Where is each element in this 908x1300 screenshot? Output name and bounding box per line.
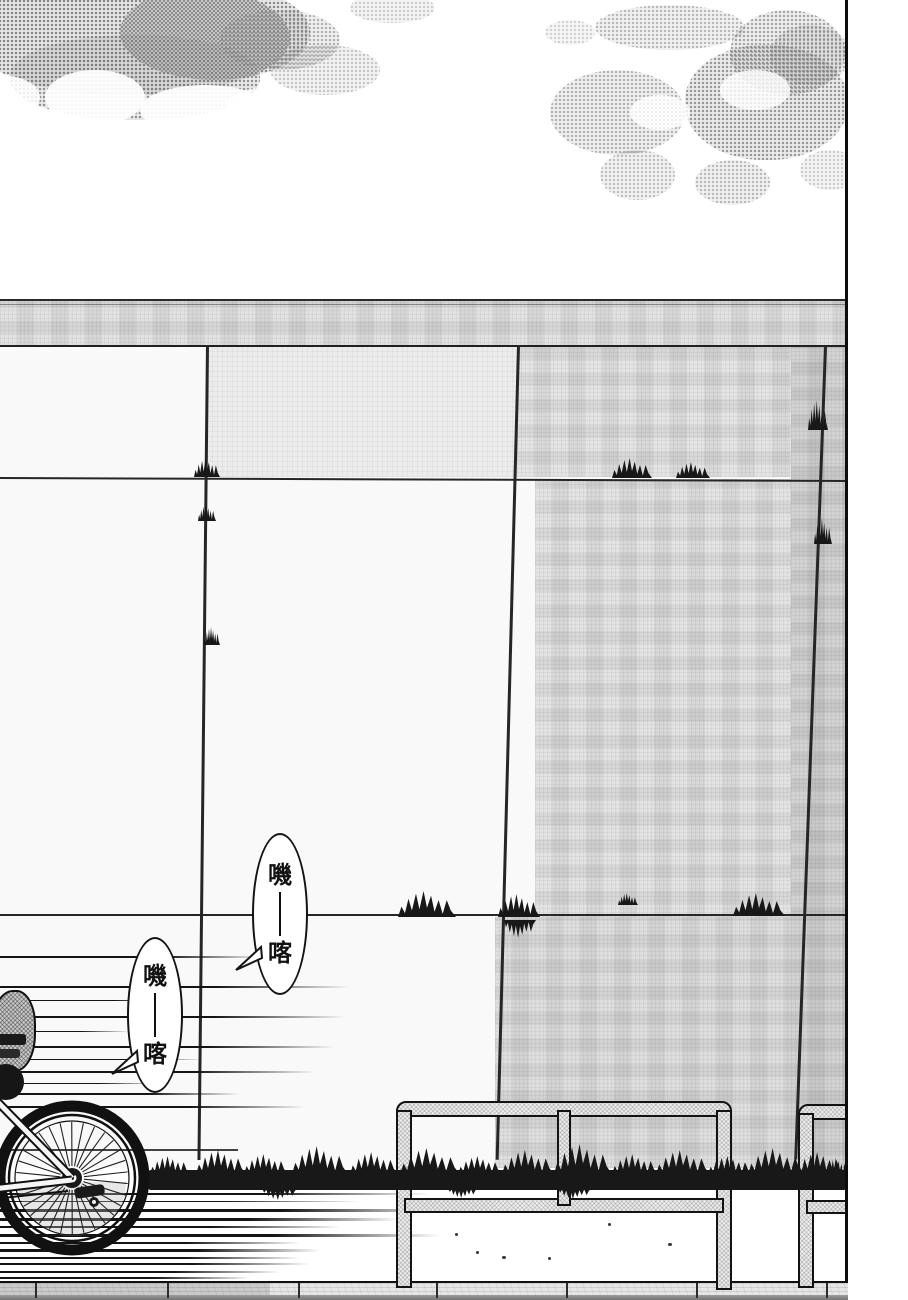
cloud-blob (600, 150, 675, 200)
cloud-blob (595, 5, 745, 50)
wall-beam-top-line2 (0, 304, 848, 305)
bike-rack-bar (0, 1049, 20, 1058)
cloud-top-right (540, 0, 848, 240)
ground-speck (668, 1243, 672, 1246)
wall-beam-bottom-line (0, 345, 848, 347)
cloud-blob (350, 0, 435, 23)
curb-joint (826, 1283, 828, 1298)
curb-bottom-dark (0, 1295, 848, 1300)
sfx-char-top: 嘰 (268, 863, 292, 887)
panel-border-right (845, 0, 848, 1283)
ground-speck (455, 1233, 458, 1236)
cloud-blob (770, 25, 848, 85)
sfx-char-bottom: 喀 (268, 941, 292, 965)
ground-speck (476, 1251, 479, 1254)
manga-page: 嘰 喀 嘰 喀 (0, 0, 908, 1300)
cloud-highlight (630, 95, 690, 130)
tile-row3-right (495, 917, 795, 1168)
railing2-mid-bar (806, 1200, 848, 1214)
cloud-blob (800, 150, 848, 190)
speed-line-ground (0, 1277, 250, 1279)
cloud-blob (545, 20, 595, 45)
sfx-bubble-2-tail (110, 1048, 140, 1078)
wall-beam-top-line (0, 299, 848, 301)
speed-line-ground (0, 1271, 280, 1273)
cloud-highlight (720, 70, 790, 110)
ground-speck (502, 1256, 506, 1259)
curb-joint (298, 1283, 300, 1298)
ground-speck (608, 1223, 611, 1226)
wall-beam-band (0, 300, 848, 347)
grass-tuft-foreground (448, 1188, 478, 1198)
curb-joint (35, 1283, 37, 1298)
cloud-blob (695, 160, 770, 205)
manga-panel: 嘰 喀 嘰 喀 (0, 0, 848, 1300)
sfx-prolonged-sound-mark (154, 993, 157, 1037)
curb-joint (436, 1283, 438, 1298)
sfx-bubble-1-tail (234, 944, 264, 974)
curb-joint (696, 1283, 698, 1298)
speed-line (0, 1083, 160, 1084)
tile-row1-right (517, 347, 824, 477)
page-margin-right (848, 0, 908, 1300)
ground-speck (548, 1257, 551, 1260)
curb-joint (167, 1283, 169, 1298)
sfx-prolonged-sound-mark (279, 892, 282, 936)
speed-line (0, 956, 265, 958)
tile-row2-right (535, 479, 823, 917)
bicycle-rear-wheel (0, 1096, 162, 1264)
curb-joint (566, 1283, 568, 1298)
cloud-highlight (225, 87, 315, 127)
cloud-top-left (0, 0, 450, 150)
cloud-highlight (45, 70, 145, 125)
tile-row1-mid (207, 347, 517, 477)
sfx-char-top: 嘰 (143, 964, 167, 988)
bike-rack-bar (0, 1034, 26, 1045)
sfx-char-bottom: 喀 (143, 1042, 167, 1066)
speed-line (0, 1093, 240, 1095)
